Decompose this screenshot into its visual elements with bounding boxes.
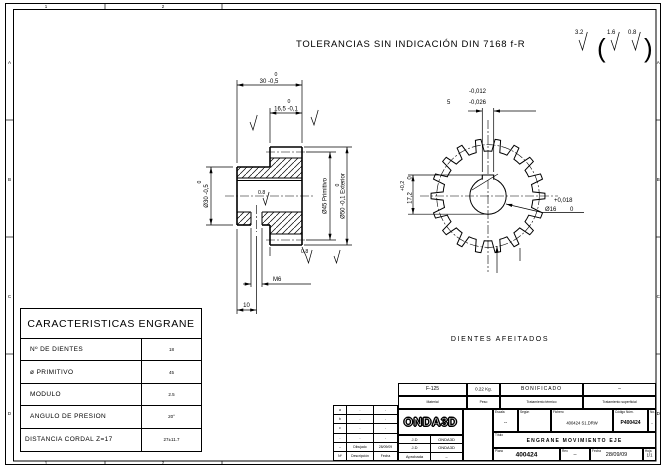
spacer-cell	[463, 409, 493, 461]
dim-text: M6	[273, 277, 282, 283]
section-view: 0 30 -0,5 0 16,5 -0,1 0 Ø30 -0,5 Ø45 Pri…	[197, 72, 352, 314]
rev-value: --	[561, 452, 589, 458]
dim-text: 5	[447, 100, 451, 106]
row-label: ø PRIMITIVO	[21, 361, 142, 382]
row-value: 45	[142, 361, 201, 382]
revision-table: a - - b - - c - - - - - -- Dibujado 28/0…	[333, 405, 398, 461]
weight-value: 0.22 Kg.	[468, 386, 499, 391]
dim-keyway-width: -0,012 5 -0,026	[447, 89, 536, 172]
dim-text: Ø16	[545, 207, 557, 213]
code-value: P400424	[614, 420, 647, 426]
tolerance-note: TOLERANCIAS SIN INDICACIÓN DIN 7168 f-R	[296, 39, 525, 50]
table-row: ø PRIMITIVO 45	[21, 361, 201, 383]
revision-cell: Dibujado	[347, 443, 374, 451]
revision-cell: Descripción	[347, 452, 374, 460]
surface-treatment-label-cell: Tratamiento superficial	[583, 396, 656, 409]
roughness-fine-value: 1.6	[607, 30, 616, 36]
revision-row: a - -	[334, 406, 397, 415]
drawing-title: ENGRANE MOVIMIENTO EJE	[494, 438, 655, 444]
roughness-check-icon	[250, 115, 257, 130]
revision-cell: Fecha	[374, 452, 397, 460]
dim-thread: M6	[243, 228, 311, 287]
file-value: 400424 S1.DRW	[552, 421, 612, 426]
tolerance-header: TOLERANCIAS SIN INDICACIÓN DIN 7168 f-R …	[296, 30, 653, 63]
dim-text: +0,018	[554, 198, 573, 204]
sheet-number-value: 1/1	[644, 453, 655, 458]
row-value: 27±11.7	[142, 429, 201, 451]
dim-text: Ø30 -0,5	[204, 184, 210, 208]
characteristics-table: CARACTERISTICAS ENGRANE Nº DE DIENTES 18…	[20, 308, 202, 452]
surface-treatment-value-cell: –	[583, 383, 656, 396]
signature-cell: ONDA3D	[431, 444, 462, 451]
material-label-cell: Material	[398, 396, 467, 409]
signature-row: J.D ONDA3D	[399, 436, 462, 444]
segun-cell: Según	[518, 409, 551, 432]
signature-cell: ONDA3D	[431, 436, 462, 443]
title-label: Título	[495, 433, 503, 437]
dim-text: Ø50 -0,1 Exterior	[341, 173, 347, 219]
revision-cell: b	[334, 415, 347, 423]
file-label: Fichero	[553, 410, 564, 414]
front-view: -0,012 5 -0,026 +0,2 17,2 0 +0,018 Ø16 0…	[400, 89, 584, 343]
dim-thread-offset: 10	[237, 229, 257, 314]
table-row: DISTANCIA CORDAL Z=17 27±11.7	[21, 429, 201, 451]
surface-treatment-label: Tratamiento superficial	[584, 400, 655, 404]
segun-label: Según	[520, 410, 529, 414]
dim-text: +0,2	[400, 181, 406, 191]
row-label: Nº DE DIENTES	[21, 339, 142, 360]
signature-row: Aprobada –	[399, 453, 462, 460]
row-value: 18	[142, 339, 201, 360]
dim-text: 17,2	[408, 192, 414, 204]
scale-label: Escala	[495, 410, 505, 414]
sheet-number-cell: Hoja 1/1	[643, 448, 656, 461]
code-label: Código Núm.	[615, 410, 634, 414]
dim-text: Ø45 Primitivo	[323, 177, 329, 214]
signature-cell: J.D	[399, 436, 431, 443]
weight-value-cell: 0.22 Kg.	[467, 383, 500, 396]
revision-cell: -	[347, 415, 374, 423]
open-paren: (	[597, 33, 606, 63]
close-paren: )	[644, 33, 653, 63]
zone-letter: A	[657, 60, 660, 65]
date-value: 28/09/09	[591, 452, 642, 458]
row-value: 20°	[142, 406, 201, 427]
revision-cell: -	[374, 434, 397, 442]
dim-text: 0	[408, 176, 414, 180]
revision-cell: -	[374, 406, 397, 414]
row-label: ANGULO DE PRESION	[21, 406, 142, 427]
roughness-finest-value: 0.8	[628, 30, 637, 36]
dim-text: -0,026	[469, 100, 487, 106]
treatment-value-cell: BONIFICADO	[500, 383, 583, 396]
roughness-general-value: 3.2	[575, 30, 584, 36]
revision-cell: -	[347, 434, 374, 442]
dim-text: 16,5 -0,1	[274, 107, 298, 113]
hatch-area	[237, 167, 270, 178]
drawing-title-cell: Título ENGRANE MOVIMIENTO EJE	[493, 432, 656, 448]
revision-row: c - -	[334, 424, 397, 433]
signature-cell: –	[431, 453, 462, 460]
dim-pitch-dia: Ø45 Primitivo	[306, 152, 336, 240]
dim-text: 0	[275, 72, 278, 78]
dim-face-width: 0 16,5 -0,1	[250, 99, 318, 143]
characteristics-title: CARACTERISTICAS ENGRANE	[21, 309, 201, 339]
signature-table: J.D ONDA3D J.D ONDA3D Aprobada –	[398, 435, 463, 461]
rev-cell: Rev. --	[560, 448, 590, 461]
revision-cell: --	[334, 443, 347, 451]
ra-face: 0.8	[270, 247, 340, 263]
zone-letter: B	[657, 177, 660, 182]
file-cell: Fichero 400424 S1.DRW	[551, 409, 613, 432]
hatch-area	[237, 212, 251, 225]
dim-text: 10	[243, 303, 250, 309]
no-label: No.	[650, 410, 655, 414]
date-cell: Fecha 28/09/09	[590, 448, 643, 461]
revision-cell: -	[347, 406, 374, 414]
title-block: F-125 0.22 Kg. BONIFICADO – Material Pes…	[333, 383, 656, 461]
signature-cell: Aprobada	[399, 453, 431, 460]
table-row: ANGULO DE PRESION 20°	[21, 406, 201, 428]
dim-bore: +0,018 Ø16 0	[506, 198, 584, 213]
dim-text: 0	[288, 99, 291, 105]
treatment-label-cell: Tratamiento térmico	[500, 396, 583, 409]
revision-header-row: Nº Descripción Fecha	[334, 452, 397, 460]
revision-cell: c	[334, 424, 347, 432]
revision-cell: Nº	[334, 452, 347, 460]
teeth-note: DIENTES AFEITADOS	[451, 336, 549, 343]
revision-cell: -	[334, 434, 347, 442]
no-value: --	[649, 421, 655, 425]
dim-text: 30 -0,5	[260, 79, 279, 85]
zone-letter: C	[8, 294, 12, 299]
company-logo: ONDA3D	[404, 415, 458, 429]
dim-text: 0	[570, 207, 574, 213]
ra-value: 0.8	[301, 249, 308, 255]
zone-number: 1	[45, 4, 48, 9]
weight-label: Peso	[468, 400, 499, 404]
hatch-area	[270, 212, 302, 234]
revision-row: b - -	[334, 415, 397, 424]
company-logo-box: ONDA3D	[398, 409, 463, 435]
signature-cell: J.D	[399, 444, 431, 451]
no-cell: No. --	[648, 409, 656, 432]
revision-cell: -	[374, 424, 397, 432]
roughness-check-icon	[311, 110, 318, 125]
zone-letter: A	[8, 60, 11, 65]
code-cell: Código Núm. P400424	[613, 409, 648, 432]
table-row: Nº DE DIENTES 18	[21, 339, 201, 361]
revision-row: - - -	[334, 434, 397, 443]
weight-label-cell: Peso	[467, 396, 500, 409]
zone-letter: D	[8, 411, 12, 416]
surface-treatment-value: –	[584, 386, 655, 392]
signature-row: J.D ONDA3D	[399, 444, 462, 452]
material-value: F-125	[399, 386, 466, 392]
row-value: 2.5	[142, 384, 201, 405]
revision-cell: -	[347, 424, 374, 432]
dim-text: -0,012	[469, 89, 487, 95]
scale-value: --	[494, 420, 517, 426]
hatch-area	[270, 158, 302, 178]
treatment-label: Tratamiento térmico	[501, 400, 582, 404]
ra-value: 0.8	[258, 190, 265, 196]
scale-cell: Escala --	[493, 409, 518, 432]
row-label: DISTANCIA CORDAL Z=17	[21, 429, 142, 451]
revision-cell: a	[334, 406, 347, 414]
hatch-area	[262, 212, 270, 225]
dim-text: 0	[197, 180, 203, 183]
row-label: MODULO	[21, 384, 142, 405]
plano-value: 400424	[494, 452, 559, 459]
zone-number: 2	[162, 4, 165, 9]
material-value-cell: F-125	[398, 383, 467, 396]
revision-cell: -	[374, 415, 397, 423]
revision-row: -- Dibujado 28/09/09	[334, 443, 397, 452]
plano-cell: Plano 400424	[493, 448, 560, 461]
revision-cell: 28/09/09	[374, 443, 397, 451]
roughness-check-icon	[334, 250, 340, 263]
ra-bore: 0.8	[258, 190, 269, 205]
treatment-value: BONIFICADO	[501, 386, 582, 392]
table-row: MODULO 2.5	[21, 384, 201, 406]
drawing-sheet: 1 2 1 2 A B C D A B C D TOLERANCIAS SIN …	[0, 0, 666, 468]
zone-letter: B	[8, 177, 11, 182]
material-label: Material	[399, 400, 466, 404]
